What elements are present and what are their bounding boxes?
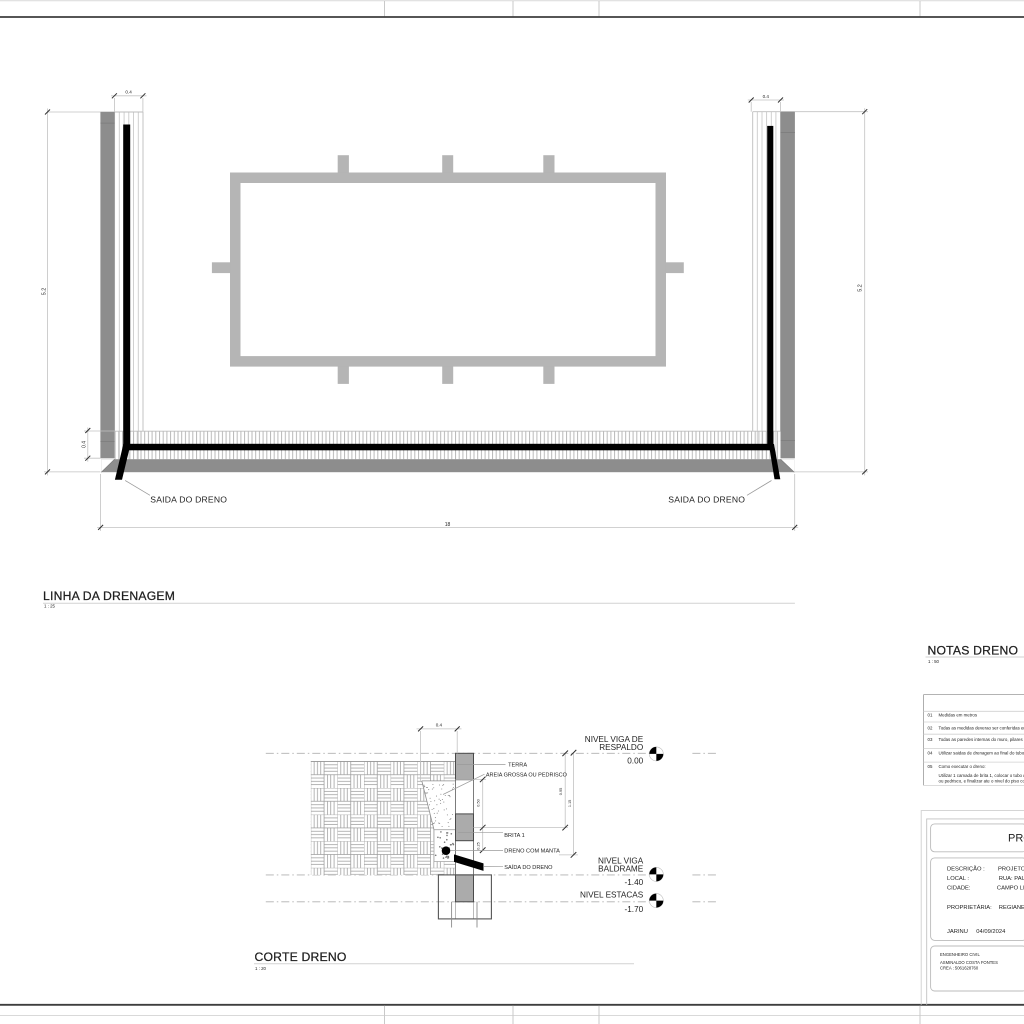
svg-text:CORTE DRENO: CORTE DRENO: [255, 950, 347, 964]
svg-text:SAIDA DO DRENO: SAIDA DO DRENO: [150, 495, 227, 505]
svg-text:-1.70: -1.70: [625, 905, 644, 914]
svg-text:1 : 50: 1 : 50: [928, 659, 940, 664]
svg-text:SAÍDA DO DRENO: SAÍDA DO DRENO: [504, 864, 553, 871]
svg-text:SAIDA DO DRENO: SAIDA DO DRENO: [668, 495, 745, 505]
svg-text:NIVEL ESTACAS: NIVEL ESTACAS: [580, 890, 644, 899]
svg-text:NOTAS DRENO: NOTAS DRENO: [928, 644, 1019, 658]
svg-text:1 : 25: 1 : 25: [44, 604, 56, 609]
svg-text:Utilizar saidas de drenagem ao: Utilizar saidas de drenagem ao final do …: [939, 750, 1024, 755]
svg-text:ASMINALDO COSTA FONTES: ASMINALDO COSTA FONTES: [940, 960, 998, 965]
svg-text:REGIANE B: REGIANE B: [999, 905, 1024, 911]
svg-text:5.2: 5.2: [858, 284, 864, 292]
svg-text:RESPALDO: RESPALDO: [599, 743, 643, 752]
svg-text:TERRA: TERRA: [508, 763, 527, 769]
svg-text:18: 18: [445, 522, 451, 528]
svg-text:02: 02: [928, 725, 933, 730]
svg-text:BALDRAME: BALDRAME: [598, 865, 644, 874]
svg-text:CREA : 5061628760: CREA : 5061628760: [940, 966, 979, 971]
svg-text:0.95: 0.95: [559, 788, 563, 795]
svg-text:03: 03: [928, 737, 933, 742]
svg-text:0.00: 0.00: [627, 756, 643, 765]
svg-text:0.4: 0.4: [125, 90, 132, 95]
svg-text:05: 05: [928, 764, 933, 769]
svg-text:LOCAL :: LOCAL :: [947, 876, 969, 882]
svg-text:LINHA DA DRENAGEM: LINHA DA DRENAGEM: [43, 589, 175, 603]
svg-text:DRENO COM MANTA: DRENO COM MANTA: [504, 849, 560, 855]
svg-text:Medidas em metros: Medidas em metros: [939, 712, 978, 717]
svg-text:04/09/2024: 04/09/2024: [976, 929, 1006, 935]
svg-text:ou pedrisco, e finalizar ate o: ou pedrisco, e finalizar ate o nivel do …: [939, 778, 1024, 783]
svg-text:1.15: 1.15: [568, 800, 572, 807]
svg-text:01: 01: [928, 712, 933, 717]
svg-text:AREIA GROSSA OU PEDRISCO: AREIA GROSSA OU PEDRISCO: [486, 772, 568, 778]
svg-text:Todas as medidas deverao ser c: Todas as medidas deverao ser conferidas …: [939, 725, 1024, 730]
svg-text:ENGENHEIRO CIVIL: ENGENHEIRO CIVIL: [940, 952, 980, 957]
svg-text:0.4: 0.4: [436, 722, 443, 727]
svg-text:PROPRIETÁRIA:: PROPRIETÁRIA:: [947, 904, 992, 911]
svg-text:DESCRIÇÃO :: DESCRIÇÃO :: [947, 866, 985, 873]
svg-text:04: 04: [928, 750, 933, 755]
svg-text:Todas as paredes internas do m: Todas as paredes internas do muro, pilar…: [939, 737, 1024, 742]
svg-text:JARINU: JARINU: [947, 929, 968, 935]
svg-text:0.4: 0.4: [81, 441, 87, 448]
svg-text:PROJETO: PROJETO: [1008, 833, 1024, 845]
svg-text:PROJETO D: PROJETO D: [998, 867, 1024, 873]
svg-text:1 : 20: 1 : 20: [255, 966, 267, 971]
svg-text:RUA: PAUL: RUA: PAUL: [999, 876, 1024, 882]
svg-text:0.4: 0.4: [763, 94, 770, 99]
svg-text:Como executar o dreno:: Como executar o dreno:: [939, 764, 986, 769]
svg-text:5.2: 5.2: [41, 288, 47, 296]
svg-text:-1.40: -1.40: [625, 878, 644, 887]
svg-text:BRITA 1: BRITA 1: [504, 833, 524, 839]
svg-text:Utilizar 1 camada de brita 1,: Utilizar 1 camada de brita 1, colocar o …: [939, 773, 1024, 778]
svg-text:CIDADE:: CIDADE:: [947, 886, 971, 892]
svg-text:0.25: 0.25: [477, 842, 481, 849]
svg-text:CAMPO LIM: CAMPO LIM: [997, 886, 1024, 892]
svg-text:0.50: 0.50: [477, 799, 481, 806]
